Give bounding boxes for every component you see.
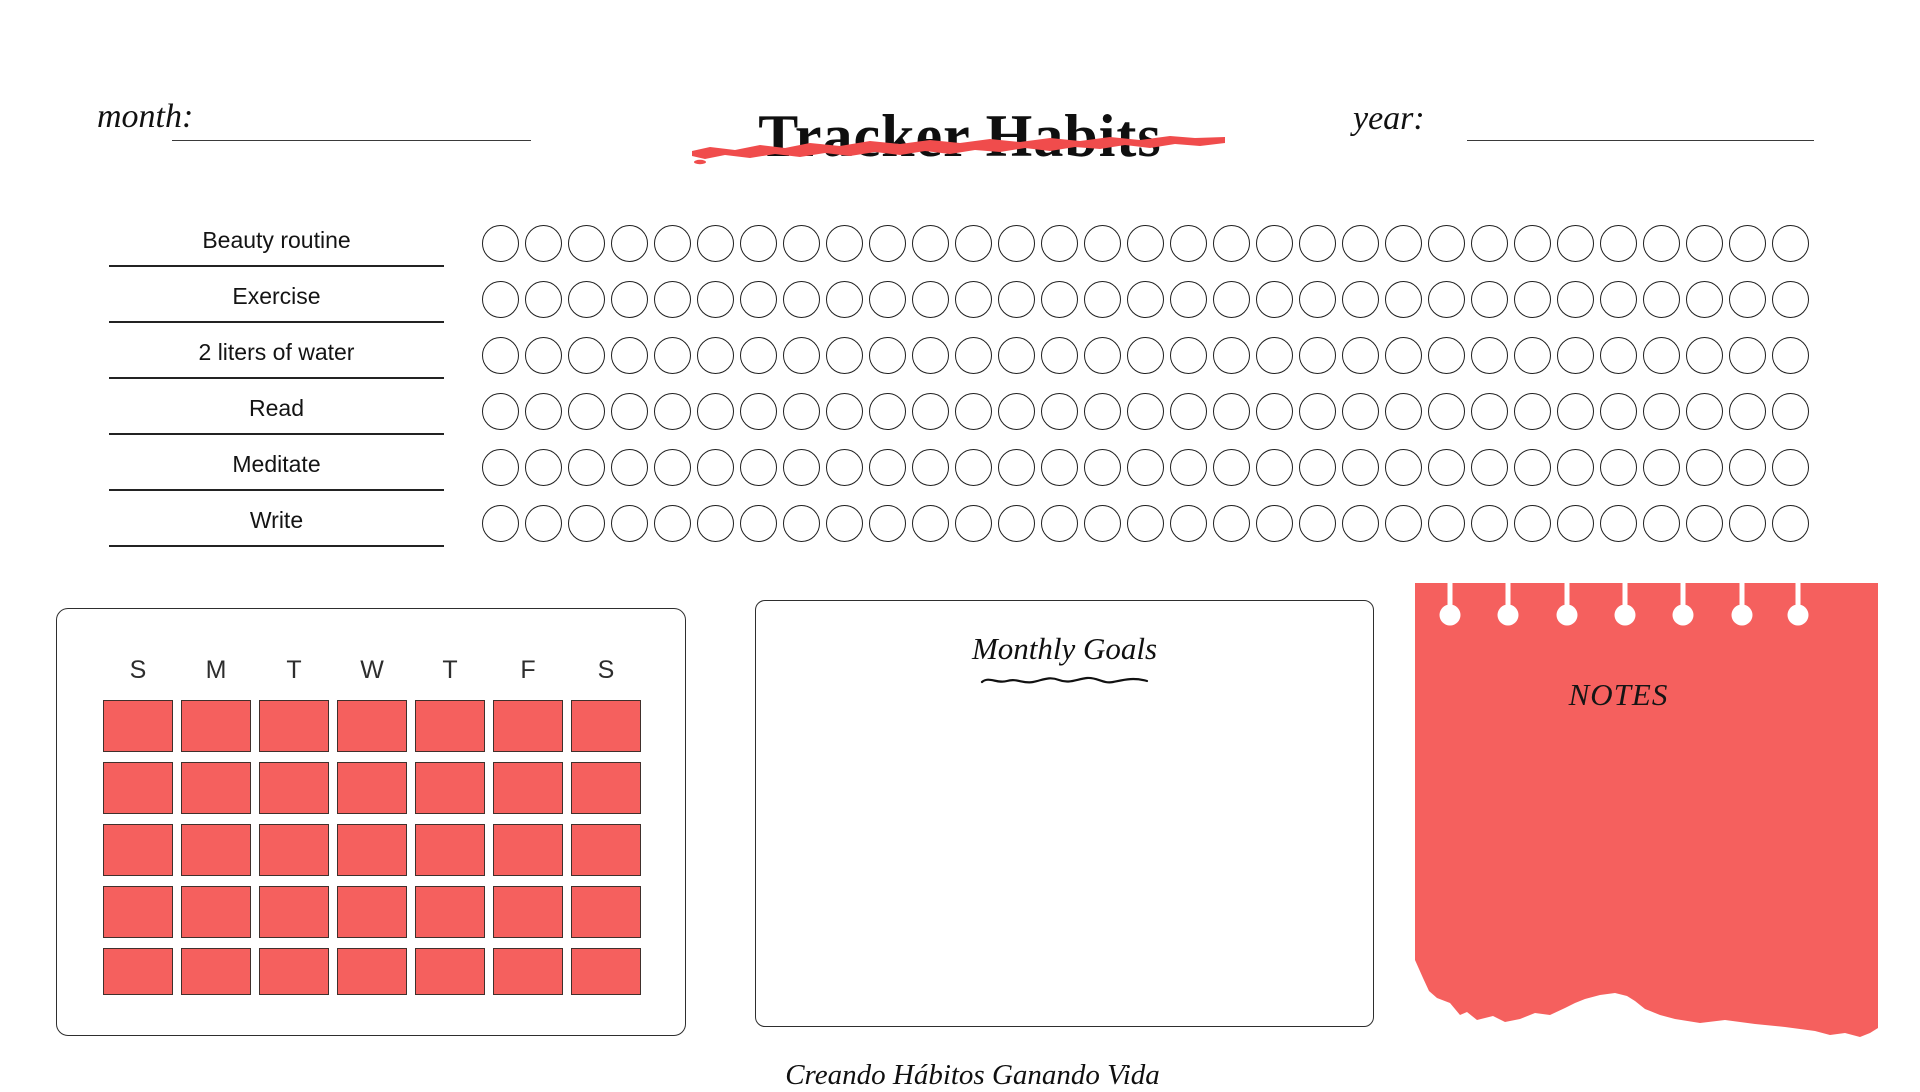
day-circle[interactable]: [525, 505, 562, 542]
day-circle[interactable]: [1643, 281, 1680, 318]
day-circle[interactable]: [1213, 337, 1250, 374]
day-circle[interactable]: [1342, 281, 1379, 318]
day-circle[interactable]: [998, 281, 1035, 318]
day-circle[interactable]: [1471, 225, 1508, 262]
day-circle[interactable]: [568, 505, 605, 542]
day-circle[interactable]: [1127, 393, 1164, 430]
day-circle[interactable]: [783, 281, 820, 318]
day-circle[interactable]: [1385, 393, 1422, 430]
day-circle[interactable]: [1041, 393, 1078, 430]
calendar-day-cell[interactable]: [181, 824, 251, 876]
day-circle[interactable]: [826, 225, 863, 262]
day-circle[interactable]: [1686, 337, 1723, 374]
torn-paper-shape: [1415, 583, 1878, 1037]
habit-label: Exercise: [109, 271, 444, 323]
day-circle[interactable]: [1127, 225, 1164, 262]
day-circle[interactable]: [697, 337, 734, 374]
day-circle[interactable]: [740, 225, 777, 262]
binder-hole-icon: [1557, 605, 1578, 626]
day-circle[interactable]: [1428, 225, 1465, 262]
day-circle[interactable]: [482, 225, 519, 262]
day-circle[interactable]: [697, 281, 734, 318]
calendar-day-cell[interactable]: [259, 824, 329, 876]
binder-hole-icon: [1498, 605, 1519, 626]
binder-hole-icon: [1732, 605, 1753, 626]
habit-day-circles: [482, 393, 1809, 430]
day-circle[interactable]: [1428, 393, 1465, 430]
day-circle[interactable]: [1772, 337, 1809, 374]
calendar-day-cell[interactable]: [415, 700, 485, 752]
calendar-day-cell[interactable]: [181, 700, 251, 752]
day-circle[interactable]: [1299, 393, 1336, 430]
day-circle[interactable]: [1385, 449, 1422, 486]
calendar-day-cell[interactable]: [415, 886, 485, 938]
day-circle[interactable]: [1170, 281, 1207, 318]
calendar-day-letter: S: [103, 656, 173, 685]
day-circle[interactable]: [826, 337, 863, 374]
day-circle[interactable]: [611, 337, 648, 374]
day-circle[interactable]: [525, 281, 562, 318]
calendar-day-cell[interactable]: [415, 762, 485, 814]
day-circle[interactable]: [912, 505, 949, 542]
calendar-day-headers: SMTWTFS: [103, 656, 641, 685]
day-circle[interactable]: [654, 449, 691, 486]
day-circle[interactable]: [740, 449, 777, 486]
day-circle[interactable]: [697, 449, 734, 486]
day-circle[interactable]: [1084, 225, 1121, 262]
day-circle[interactable]: [1213, 393, 1250, 430]
day-circle[interactable]: [1729, 449, 1766, 486]
day-circle[interactable]: [1428, 337, 1465, 374]
day-circle[interactable]: [1041, 225, 1078, 262]
day-circle[interactable]: [1600, 225, 1637, 262]
day-circle[interactable]: [1299, 337, 1336, 374]
calendar-day-letter: F: [493, 656, 563, 685]
day-circle[interactable]: [740, 505, 777, 542]
day-circle[interactable]: [1643, 505, 1680, 542]
day-circle[interactable]: [740, 281, 777, 318]
day-circle[interactable]: [1342, 449, 1379, 486]
day-circle[interactable]: [568, 225, 605, 262]
day-circle[interactable]: [1686, 505, 1723, 542]
year-input-line[interactable]: [1467, 140, 1814, 141]
day-circle[interactable]: [1213, 225, 1250, 262]
habit-row: Exercise: [109, 271, 1809, 327]
day-circle[interactable]: [1686, 393, 1723, 430]
notes-title: NOTES: [1415, 677, 1822, 713]
calendar-inner: SMTWTFS: [103, 656, 641, 995]
day-circle[interactable]: [1772, 281, 1809, 318]
day-circle[interactable]: [1729, 281, 1766, 318]
calendar-day-cell[interactable]: [571, 762, 641, 814]
day-circle[interactable]: [1557, 337, 1594, 374]
calendar-day-cell[interactable]: [103, 700, 173, 752]
habit-row: Write: [109, 495, 1809, 551]
day-circle[interactable]: [783, 505, 820, 542]
day-circle[interactable]: [1256, 281, 1293, 318]
day-circle[interactable]: [1471, 449, 1508, 486]
monthly-goals-title: Monthly Goals: [756, 631, 1373, 667]
day-circle[interactable]: [1299, 505, 1336, 542]
calendar-day-cell[interactable]: [259, 886, 329, 938]
day-circle[interactable]: [998, 449, 1035, 486]
day-circle[interactable]: [1041, 337, 1078, 374]
day-circle[interactable]: [611, 281, 648, 318]
day-circle[interactable]: [955, 337, 992, 374]
day-circle[interactable]: [482, 449, 519, 486]
day-circle[interactable]: [1772, 449, 1809, 486]
calendar-day-cell[interactable]: [493, 700, 563, 752]
day-circle[interactable]: [955, 505, 992, 542]
day-circle[interactable]: [654, 225, 691, 262]
calendar-day-cell[interactable]: [337, 948, 407, 995]
day-circle[interactable]: [998, 225, 1035, 262]
day-circle[interactable]: [826, 281, 863, 318]
day-circle[interactable]: [912, 393, 949, 430]
day-circle[interactable]: [1170, 393, 1207, 430]
day-circle[interactable]: [826, 449, 863, 486]
day-circle[interactable]: [1514, 505, 1551, 542]
day-circle[interactable]: [1557, 393, 1594, 430]
calendar-day-cell[interactable]: [103, 762, 173, 814]
day-circle[interactable]: [1256, 225, 1293, 262]
habit-label: Meditate: [109, 439, 444, 491]
day-circle[interactable]: [955, 281, 992, 318]
calendar-day-cell[interactable]: [415, 824, 485, 876]
day-circle[interactable]: [1170, 505, 1207, 542]
day-circle[interactable]: [1084, 393, 1121, 430]
day-circle[interactable]: [1385, 505, 1422, 542]
calendar-day-cell[interactable]: [571, 886, 641, 938]
day-circle[interactable]: [654, 337, 691, 374]
day-circle[interactable]: [826, 505, 863, 542]
day-circle[interactable]: [826, 393, 863, 430]
habit-row: 2 liters of water: [109, 327, 1809, 383]
day-circle[interactable]: [611, 225, 648, 262]
calendar-day-cell[interactable]: [571, 948, 641, 995]
day-circle[interactable]: [654, 281, 691, 318]
day-circle[interactable]: [783, 225, 820, 262]
day-circle[interactable]: [1729, 337, 1766, 374]
habit-day-circles: [482, 225, 1809, 262]
habit-row: Beauty routine: [109, 215, 1809, 271]
day-circle[interactable]: [1127, 337, 1164, 374]
day-circle[interactable]: [482, 505, 519, 542]
day-circle[interactable]: [1041, 449, 1078, 486]
habit-day-circles: [482, 281, 1809, 318]
day-circle[interactable]: [1514, 281, 1551, 318]
day-circle[interactable]: [1643, 449, 1680, 486]
binder-hole-icon: [1440, 605, 1461, 626]
habit-label: Read: [109, 383, 444, 435]
habit-row: Meditate: [109, 439, 1809, 495]
calendar-day-cell[interactable]: [571, 824, 641, 876]
day-circle[interactable]: [1041, 281, 1078, 318]
day-circle[interactable]: [1385, 225, 1422, 262]
day-circle[interactable]: [482, 393, 519, 430]
day-circle[interactable]: [1772, 393, 1809, 430]
day-circle[interactable]: [1385, 281, 1422, 318]
day-circle[interactable]: [1256, 505, 1293, 542]
day-circle[interactable]: [1686, 281, 1723, 318]
calendar-day-cell[interactable]: [181, 948, 251, 995]
day-circle[interactable]: [482, 281, 519, 318]
day-circle[interactable]: [1084, 337, 1121, 374]
day-circle[interactable]: [697, 393, 734, 430]
calendar-day-letter: T: [259, 656, 329, 685]
day-circle[interactable]: [783, 337, 820, 374]
day-circle[interactable]: [869, 225, 906, 262]
day-circle[interactable]: [525, 449, 562, 486]
day-circle[interactable]: [869, 505, 906, 542]
habit-day-circles: [482, 337, 1809, 374]
day-circle[interactable]: [1471, 337, 1508, 374]
calendar-day-letter: T: [415, 656, 485, 685]
squiggle-underline: [979, 672, 1151, 688]
calendar-day-cell[interactable]: [337, 762, 407, 814]
day-circle[interactable]: [1084, 281, 1121, 318]
day-circle[interactable]: [1084, 505, 1121, 542]
day-circle[interactable]: [1557, 225, 1594, 262]
day-circle[interactable]: [1557, 505, 1594, 542]
day-circle[interactable]: [1213, 449, 1250, 486]
calendar-day-cell[interactable]: [415, 948, 485, 995]
binder-hole-icon: [1673, 605, 1694, 626]
day-circle[interactable]: [482, 337, 519, 374]
day-circle[interactable]: [1600, 393, 1637, 430]
day-circle[interactable]: [568, 281, 605, 318]
day-circle[interactable]: [1256, 337, 1293, 374]
calendar-day-cell[interactable]: [337, 824, 407, 876]
day-circle[interactable]: [611, 449, 648, 486]
day-circle[interactable]: [1256, 393, 1293, 430]
day-circle[interactable]: [1385, 337, 1422, 374]
day-circle[interactable]: [1342, 225, 1379, 262]
day-circle[interactable]: [869, 337, 906, 374]
day-circle[interactable]: [998, 505, 1035, 542]
day-circle[interactable]: [1342, 337, 1379, 374]
day-circle[interactable]: [1041, 505, 1078, 542]
day-circle[interactable]: [1213, 505, 1250, 542]
monthly-goals-card[interactable]: Monthly Goals: [755, 600, 1374, 1027]
day-circle[interactable]: [697, 225, 734, 262]
day-circle[interactable]: [955, 449, 992, 486]
habit-label: Write: [109, 495, 444, 547]
day-circle[interactable]: [912, 225, 949, 262]
day-circle[interactable]: [1686, 225, 1723, 262]
day-circle[interactable]: [912, 449, 949, 486]
day-circle[interactable]: [1428, 505, 1465, 542]
habit-label: 2 liters of water: [109, 327, 444, 379]
day-circle[interactable]: [1299, 281, 1336, 318]
day-circle[interactable]: [1772, 505, 1809, 542]
habit-label: Beauty routine: [109, 215, 444, 267]
day-circle[interactable]: [740, 393, 777, 430]
day-circle[interactable]: [955, 225, 992, 262]
day-circle[interactable]: [1084, 449, 1121, 486]
day-circle[interactable]: [783, 393, 820, 430]
habit-rows: Beauty routineExercise2 liters of waterR…: [109, 215, 1809, 551]
day-circle[interactable]: [697, 505, 734, 542]
day-circle[interactable]: [740, 337, 777, 374]
day-circle[interactable]: [955, 393, 992, 430]
day-circle[interactable]: [1127, 505, 1164, 542]
day-circle[interactable]: [783, 449, 820, 486]
calendar-day-cell[interactable]: [493, 824, 563, 876]
day-circle[interactable]: [1471, 393, 1508, 430]
day-circle[interactable]: [1729, 505, 1766, 542]
day-circle[interactable]: [1514, 225, 1551, 262]
day-circle[interactable]: [1514, 393, 1551, 430]
day-circle[interactable]: [525, 337, 562, 374]
brush-stroke-path: [692, 136, 1225, 159]
day-circle[interactable]: [525, 393, 562, 430]
calendar-day-cell[interactable]: [259, 948, 329, 995]
day-circle[interactable]: [998, 337, 1035, 374]
day-circle[interactable]: [1170, 449, 1207, 486]
calendar-day-cell[interactable]: [103, 886, 173, 938]
footer-quote: Creando Hábitos Ganando Vida: [765, 1059, 1180, 1092]
day-circle[interactable]: [1772, 225, 1809, 262]
day-circle[interactable]: [568, 449, 605, 486]
day-circle[interactable]: [1729, 225, 1766, 262]
day-circle[interactable]: [611, 505, 648, 542]
day-circle[interactable]: [869, 393, 906, 430]
day-circle[interactable]: [1471, 505, 1508, 542]
day-circle[interactable]: [568, 337, 605, 374]
day-circle[interactable]: [1643, 225, 1680, 262]
day-circle[interactable]: [1557, 449, 1594, 486]
habit-day-circles: [482, 449, 1809, 486]
binder-hole-icon: [1615, 605, 1636, 626]
calendar-day-cell[interactable]: [493, 886, 563, 938]
calendar-day-letter: M: [181, 656, 251, 685]
day-circle[interactable]: [869, 449, 906, 486]
day-circle[interactable]: [1729, 393, 1766, 430]
calendar-grid: [103, 700, 641, 995]
day-circle[interactable]: [611, 393, 648, 430]
day-circle[interactable]: [1256, 449, 1293, 486]
calendar-day-cell[interactable]: [103, 948, 173, 995]
calendar-day-cell[interactable]: [181, 886, 251, 938]
day-circle[interactable]: [1299, 225, 1336, 262]
day-circle[interactable]: [1600, 449, 1637, 486]
day-circle[interactable]: [1299, 449, 1336, 486]
habit-day-circles: [482, 505, 1809, 542]
brush-stroke-underline: [690, 129, 1230, 165]
calendar-day-cell[interactable]: [493, 948, 563, 995]
day-circle[interactable]: [1514, 337, 1551, 374]
day-circle[interactable]: [568, 393, 605, 430]
day-circle[interactable]: [1428, 449, 1465, 486]
day-circle[interactable]: [1127, 281, 1164, 318]
calendar-day-cell[interactable]: [103, 824, 173, 876]
day-circle[interactable]: [912, 337, 949, 374]
day-circle[interactable]: [1643, 337, 1680, 374]
calendar-day-cell[interactable]: [181, 762, 251, 814]
calendar-day-cell[interactable]: [337, 700, 407, 752]
year-label: year:: [1353, 100, 1425, 138]
day-circle[interactable]: [1600, 337, 1637, 374]
day-circle[interactable]: [1342, 505, 1379, 542]
habit-row: Read: [109, 383, 1809, 439]
day-circle[interactable]: [1643, 393, 1680, 430]
day-circle[interactable]: [869, 281, 906, 318]
calendar-day-cell[interactable]: [259, 762, 329, 814]
day-circle[interactable]: [998, 393, 1035, 430]
binder-hole-icon: [1788, 605, 1809, 626]
day-circle[interactable]: [1600, 505, 1637, 542]
day-circle[interactable]: [1686, 449, 1723, 486]
day-circle[interactable]: [1514, 449, 1551, 486]
day-circle[interactable]: [1600, 281, 1637, 318]
notes-paper[interactable]: [1415, 583, 1878, 1049]
day-circle[interactable]: [525, 225, 562, 262]
calendar-day-letter: W: [337, 656, 407, 685]
day-circle[interactable]: [654, 505, 691, 542]
day-circle[interactable]: [1127, 449, 1164, 486]
calendar-day-cell[interactable]: [493, 762, 563, 814]
calendar-card: SMTWTFS: [56, 608, 686, 1036]
day-circle[interactable]: [1170, 225, 1207, 262]
calendar-day-letter: S: [571, 656, 641, 685]
day-circle[interactable]: [654, 393, 691, 430]
calendar-day-cell[interactable]: [337, 886, 407, 938]
calendar-day-cell[interactable]: [571, 700, 641, 752]
day-circle[interactable]: [1557, 281, 1594, 318]
day-circle[interactable]: [1471, 281, 1508, 318]
calendar-day-cell[interactable]: [259, 700, 329, 752]
day-circle[interactable]: [912, 281, 949, 318]
day-circle[interactable]: [1213, 281, 1250, 318]
day-circle[interactable]: [1342, 393, 1379, 430]
day-circle[interactable]: [1170, 337, 1207, 374]
day-circle[interactable]: [1428, 281, 1465, 318]
